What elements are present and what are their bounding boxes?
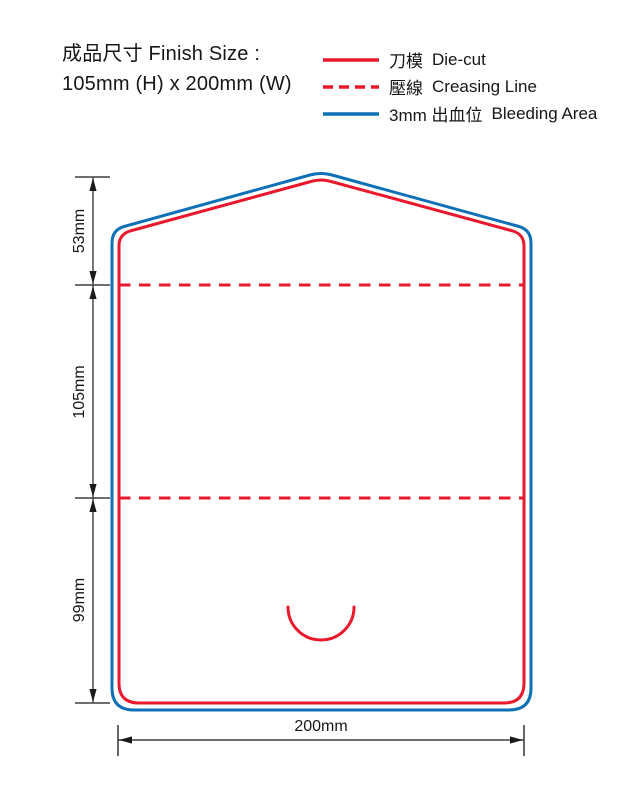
dimension-label-99mm: 99mm bbox=[71, 578, 89, 622]
arrow-down-53-bottom bbox=[89, 271, 96, 284]
dimension-lines bbox=[93, 177, 524, 740]
dimension-label-200mm: 200mm bbox=[294, 718, 347, 736]
arrow-up-99-top bbox=[89, 499, 96, 512]
dimension-arrowheads bbox=[89, 178, 523, 744]
arrow-up-105-top bbox=[89, 286, 96, 299]
die-cut-template-diagram bbox=[0, 0, 640, 800]
arrow-down-99-bottom bbox=[89, 689, 96, 702]
die-cut-outline bbox=[119, 180, 524, 703]
dimension-label-105mm: 105mm bbox=[71, 365, 89, 418]
die-cut-template-page: 成品尺寸 Finish Size : 105mm (H) x 200mm (W)… bbox=[0, 0, 640, 800]
bleed-outline bbox=[112, 174, 531, 711]
arrow-down-105-bottom bbox=[89, 484, 96, 497]
arrow-right-200 bbox=[510, 736, 523, 743]
arrow-left-200 bbox=[119, 736, 132, 743]
thumb-notch-arc bbox=[288, 607, 354, 640]
arrow-up-53-top bbox=[89, 178, 96, 191]
dimension-ticks bbox=[75, 177, 524, 756]
dimension-label-53mm: 53mm bbox=[71, 209, 89, 253]
